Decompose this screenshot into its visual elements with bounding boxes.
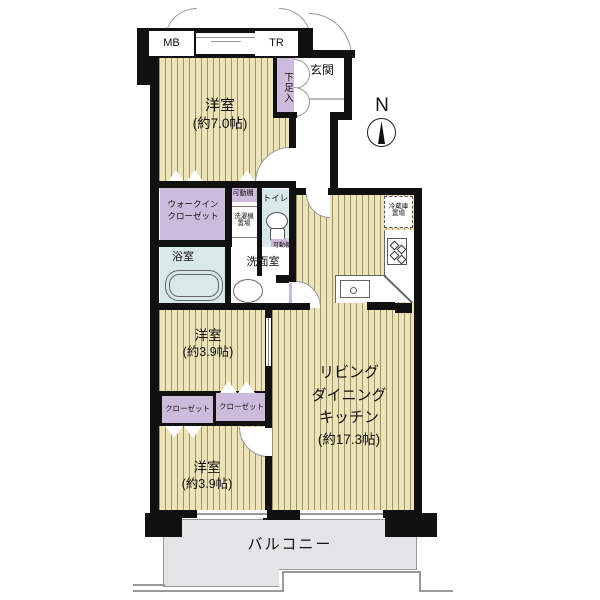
wic-line1: ウォークイン [161,199,225,211]
walk-in-closet-label: ウォークイン クローゼット [161,199,225,223]
balcony-outline [419,571,421,592]
bathtub-icon-inner [169,274,219,297]
wall [265,456,272,512]
burner-icon [397,255,407,265]
wall [263,510,300,520]
ldk-line3: キッチン [292,407,406,430]
wall [225,247,231,307]
balcony-outline [133,590,284,592]
balcony-label: バルコニー [210,536,370,555]
wall [150,50,159,518]
trunk-room-label: TR [269,37,284,49]
burner-icon [397,245,407,255]
wall [367,302,395,310]
window-line [300,513,383,515]
entrance-label: 玄関 [301,63,343,78]
wall [344,52,352,120]
wall [296,188,306,195]
balcony-outline [282,571,284,592]
meter-box-label: MB [163,37,180,49]
wall [289,182,296,282]
stove-icon [387,238,407,265]
balcony-slab-left [163,560,279,587]
bedroom-mid-label: 洋室 (約3.9帖) [157,328,259,361]
top-window [196,33,256,54]
window-line [211,41,241,42]
wall [385,513,437,537]
balcony-outline [133,584,165,586]
ldk-size: (約17.3帖) [292,430,406,450]
ldk-line2: ダイニング [292,385,406,408]
room-name: 洋室 [155,460,259,477]
wall [328,188,422,195]
washer-line2: 置場 [230,220,258,227]
toilet-label: トイレ [262,193,289,204]
balcony-outline [282,571,421,573]
balcony-outline [419,590,453,592]
wall [150,303,310,310]
wic-line2: クローゼット [161,211,225,223]
wall [145,513,182,537]
closet-right-label: クローゼット [216,402,267,411]
bath-label: 浴室 [166,251,200,265]
sliding-door-line [268,318,269,366]
room-size: (約3.9帖) [155,477,259,493]
wall [330,112,338,195]
wall [289,112,296,148]
compass-needle [376,121,387,144]
wall [150,181,296,188]
bedroom-top-label: 洋室 (約7.0帖) [165,97,275,133]
room-size: (約7.0帖) [165,116,275,133]
fridge-label: 冷蔵庫 置場 [384,203,413,218]
ldk-line1: リビング [292,362,406,385]
compass-n-label: N [370,94,394,118]
sliding-door-mark [266,318,271,366]
balcony-window [300,510,383,518]
movable-shelf-side-label: 可動棚 [271,243,293,251]
fridge-line2: 置場 [384,210,413,217]
washer-space-label: 洗濯機 置場 [230,213,258,228]
balcony-window [197,510,267,518]
wall [395,303,412,313]
wall [276,275,289,283]
ldk-label: リビング ダイニング キッチン (約17.3帖) [292,362,406,450]
closet-left-label: クローゼット [162,404,213,413]
movable-shelf-top-label: 可動棚 [228,190,258,199]
room-size: (約3.9帖) [157,345,259,361]
kitchen-faucet-icon [350,287,357,294]
trunk-room: TR [255,31,298,56]
wall [414,188,422,518]
room-name: 洋室 [165,97,275,116]
bedroom-bottom-label: 洋室 (約3.9帖) [155,460,259,493]
floor-plan: MB TR N 洋室 (約7.0帖) 玄関 下足入 ウォークイン クローゼット … [0,0,600,600]
room-name: 洋室 [157,328,259,345]
compass-icon [367,118,396,147]
window-line [197,513,267,515]
shoe-cabinet-label: 下足入 [278,62,293,114]
sink-icon [233,279,263,303]
wall [150,240,232,247]
window-line [196,37,256,38]
washroom-label: 洗面室 [238,256,288,270]
meter-box: MB [149,31,194,56]
